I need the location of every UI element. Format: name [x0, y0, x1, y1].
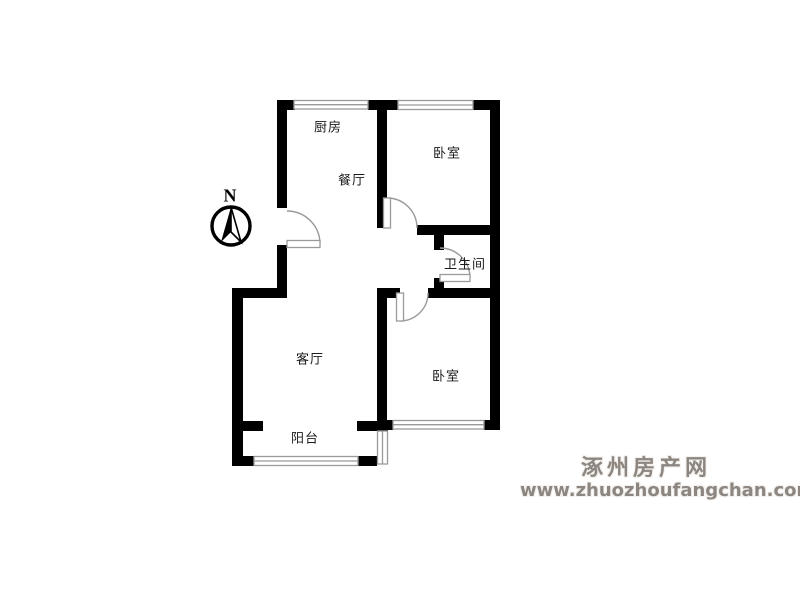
door-arc: [387, 198, 417, 228]
wall: [232, 456, 254, 466]
watermark-site-url: www.zhuozhoufangchan.com: [520, 481, 772, 502]
wall: [377, 288, 387, 430]
room-label-dining: 餐厅: [338, 170, 366, 189]
door-leaf: [384, 198, 391, 228]
wall: [387, 100, 399, 110]
wall: [277, 100, 287, 208]
wall: [277, 100, 295, 110]
room-label-kitchen: 厨房: [314, 117, 342, 136]
door-leaf: [440, 275, 470, 282]
wall: [428, 288, 500, 298]
room-label-bathroom: 卫生间: [444, 254, 486, 273]
room-label-balcony: 阳台: [291, 428, 319, 447]
north-compass-icon: [212, 207, 250, 245]
wall: [232, 288, 243, 466]
wall: [232, 421, 263, 431]
door-arc: [287, 211, 320, 244]
wall: [377, 420, 393, 430]
room-label-bedroom-1: 卧室: [433, 143, 461, 162]
door-leaf: [397, 293, 404, 321]
floorplan-page: { "plan": { "type": "apartment-floorplan…: [0, 0, 800, 600]
watermark-site-name: 涿州房产网: [520, 456, 772, 481]
room-label-bedroom-2: 卧室: [432, 366, 460, 385]
wall: [484, 420, 500, 430]
room-label-living: 客厅: [296, 349, 324, 368]
compass-north-letter: N: [224, 186, 237, 207]
wall: [434, 225, 444, 250]
wall: [358, 456, 377, 466]
watermark: 涿州房产网 www.zhuozhoufangchan.com: [520, 456, 772, 502]
wall: [490, 100, 500, 430]
floorplan-drawing: [0, 0, 800, 600]
door-arc: [400, 293, 428, 321]
door-leaf: [287, 241, 320, 248]
wall: [417, 225, 500, 235]
